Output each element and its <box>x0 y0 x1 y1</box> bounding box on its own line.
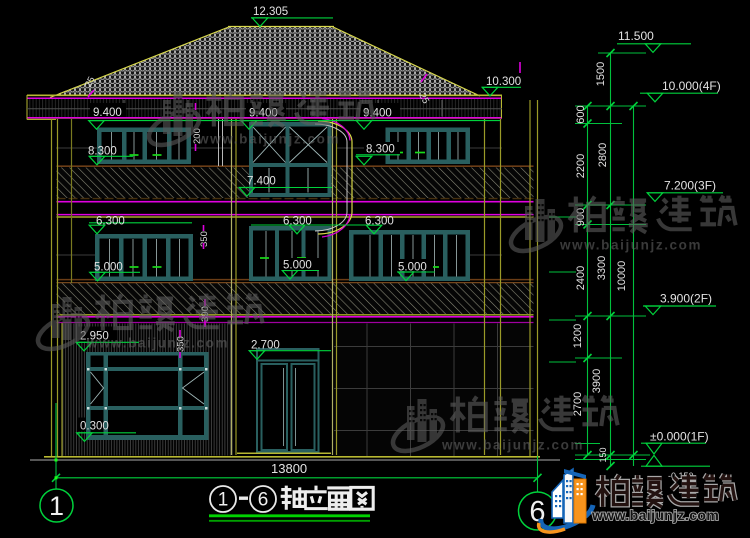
svg-text:10000: 10000 <box>616 261 628 292</box>
svg-text:2400: 2400 <box>575 266 587 290</box>
svg-text:8.300: 8.300 <box>88 146 117 158</box>
svg-text:2200: 2200 <box>575 154 587 178</box>
svg-text:9.400: 9.400 <box>93 107 122 119</box>
svg-text:10.300: 10.300 <box>486 76 521 88</box>
svg-text:6: 6 <box>258 490 269 511</box>
svg-text:11.500: 11.500 <box>618 29 654 43</box>
svg-text:3900: 3900 <box>591 369 603 393</box>
svg-text:6.300: 6.300 <box>365 216 394 228</box>
svg-text:5.000: 5.000 <box>398 262 427 274</box>
svg-text:600: 600 <box>575 105 587 123</box>
svg-text:www.baijunjz.com: www.baijunjz.com <box>591 507 719 523</box>
svg-text:3.900(2F): 3.900(2F) <box>660 292 712 306</box>
svg-text:7.400: 7.400 <box>247 176 276 188</box>
svg-text:1: 1 <box>49 491 64 521</box>
svg-text:2.700: 2.700 <box>251 340 280 352</box>
svg-text:5.000: 5.000 <box>94 262 123 274</box>
svg-text:3300: 3300 <box>596 256 608 280</box>
svg-text:6.300: 6.300 <box>283 216 312 228</box>
svg-text:10.000(4F): 10.000(4F) <box>662 79 721 93</box>
svg-text:13800: 13800 <box>271 461 307 476</box>
svg-text:2800: 2800 <box>597 143 609 167</box>
svg-text:350: 350 <box>199 231 210 247</box>
svg-text:1: 1 <box>218 490 229 511</box>
svg-text:5.000: 5.000 <box>283 260 312 272</box>
svg-text:7.200(3F): 7.200(3F) <box>664 179 716 193</box>
svg-text:150: 150 <box>598 447 608 462</box>
svg-text:1500: 1500 <box>595 62 607 86</box>
svg-text:0.300: 0.300 <box>80 421 109 433</box>
svg-text:12.305: 12.305 <box>253 6 288 18</box>
svg-text:±0.000(1F): ±0.000(1F) <box>650 430 709 444</box>
svg-text:1200: 1200 <box>572 324 584 348</box>
svg-text:8.300: 8.300 <box>366 144 395 156</box>
svg-text:2700: 2700 <box>572 392 584 416</box>
svg-text:6.300: 6.300 <box>96 216 125 228</box>
